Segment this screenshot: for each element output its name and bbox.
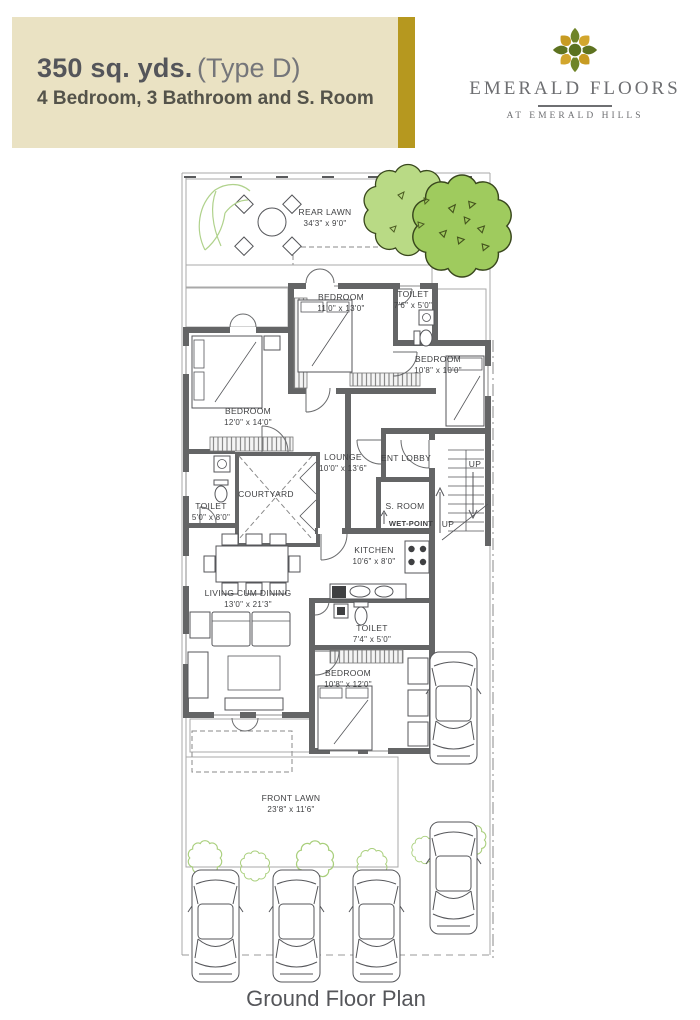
- label-s-room: S. ROOM: [386, 501, 425, 511]
- label-wet-point: WET-POINT: [389, 519, 433, 528]
- label-up-bottom: UP: [442, 519, 454, 529]
- label-living-dining: LIVING CUM DINING13'0" x 21'3": [205, 588, 292, 609]
- label-lounge: LOUNGE10'0" x 13'6": [319, 452, 367, 473]
- car: [349, 870, 404, 982]
- label-courtyard: COURTYARD: [238, 489, 294, 499]
- label-toilet-mid: TOILET7'4" x 5'0": [353, 623, 391, 644]
- label-kitchen: KITCHEN10'6" x 8'0": [352, 545, 395, 566]
- label-front-lawn: FRONT LAWN23'8" x 11'6": [262, 793, 321, 814]
- label-toilet-top: TOILET7'6" x 5'0": [394, 289, 432, 310]
- label-bedroom-left: BEDROOM12'0" x 14'0": [224, 406, 272, 427]
- car: [188, 870, 243, 982]
- garden-table-set: [235, 195, 301, 255]
- car: [426, 822, 481, 934]
- car: [426, 652, 481, 764]
- side-garden: [436, 289, 486, 343]
- plan-caption: Ground Floor Plan: [186, 986, 486, 1012]
- label-ent-lobby: ENT LOBBY: [381, 453, 431, 463]
- wet-point-marker: [381, 511, 387, 524]
- label-up-top: UP: [469, 459, 481, 469]
- floor-plan: REAR LAWN34'3" x 9'0" BEDROOM11'0" x 13'…: [0, 0, 700, 1020]
- dining-set: [204, 534, 300, 594]
- trees: [364, 164, 511, 276]
- label-bedroom-bottom: BEDROOM10'8" x 12'0": [324, 668, 372, 689]
- sofas: [188, 612, 290, 710]
- label-rear-lawn: REAR LAWN34'3" x 9'0": [299, 207, 352, 228]
- car: [269, 870, 324, 982]
